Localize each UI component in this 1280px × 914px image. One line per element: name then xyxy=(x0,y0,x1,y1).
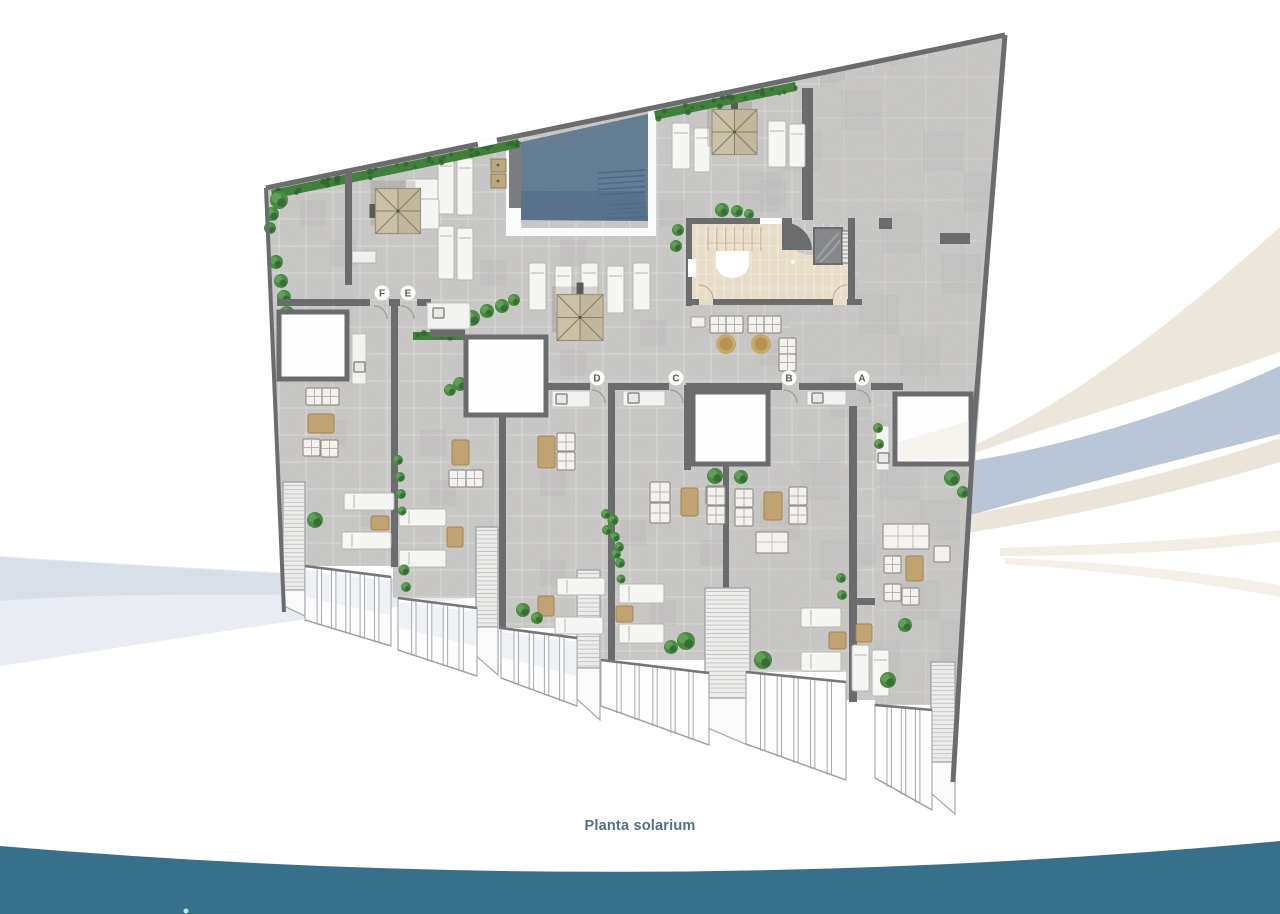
svg-text:Planta solarium: Planta solarium xyxy=(585,818,696,834)
svg-text:A: A xyxy=(858,374,865,385)
svg-text:F: F xyxy=(379,289,385,300)
svg-text:E: E xyxy=(405,289,412,300)
svg-text:C: C xyxy=(672,374,679,385)
svg-text:D: D xyxy=(593,374,600,385)
svg-text:B: B xyxy=(785,374,792,385)
